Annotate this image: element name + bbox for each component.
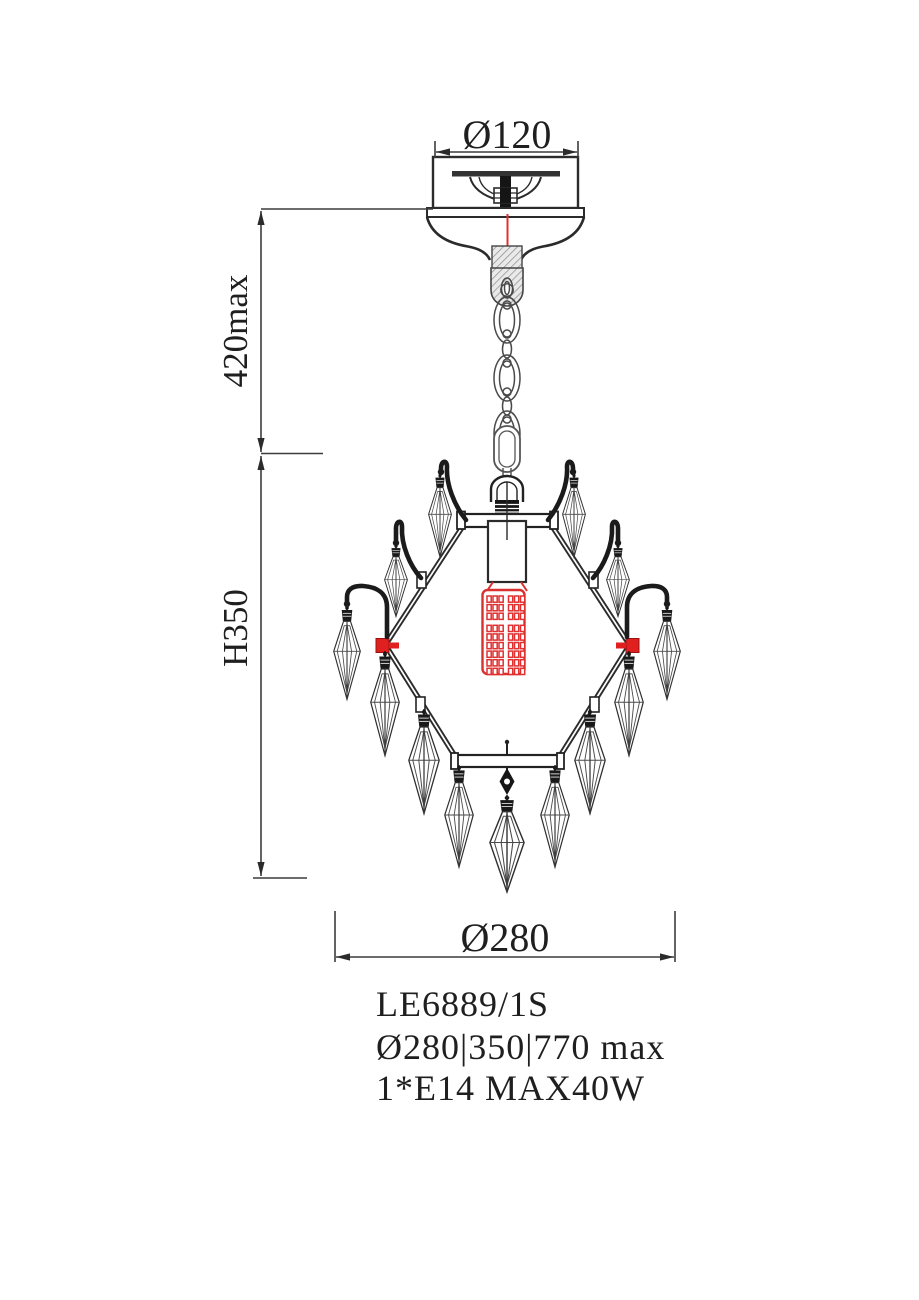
filament-cell: [521, 643, 525, 649]
filament-cell: [521, 596, 525, 602]
filament-cell: [509, 643, 513, 649]
filament-cell: [515, 625, 519, 631]
filament-cell: [509, 668, 513, 674]
filament-cell: [509, 596, 513, 602]
filament-cell: [487, 596, 491, 602]
filament-cell: [521, 668, 525, 674]
filament-cell: [521, 634, 525, 640]
filament-cell: [515, 668, 519, 674]
filament-cell: [499, 643, 503, 649]
filament-cell: [521, 613, 525, 619]
filament-cell: [515, 613, 519, 619]
product-size-spec: Ø280|350|770 max: [376, 1027, 665, 1067]
filament-cell: [487, 613, 491, 619]
crystal-drop: [445, 765, 474, 867]
technical-drawing-page: Ø120 420max H350 Ø280 LE6889/1S Ø280|350…: [0, 0, 919, 1300]
crystal-drop: [371, 651, 400, 755]
filament-cell: [499, 651, 503, 657]
mounting-plate: [452, 171, 560, 177]
dimension-vertical: [253, 209, 433, 878]
filament-cell: [487, 625, 491, 631]
filament-cell: [515, 643, 519, 649]
filament-cell: [515, 634, 519, 640]
filament-cell: [521, 651, 525, 657]
filament-cell: [499, 625, 503, 631]
filament-cell: [515, 596, 519, 602]
filament-cell: [499, 634, 503, 640]
dim-label-fixture-diameter: Ø280: [461, 915, 550, 960]
filament-cell: [521, 605, 525, 611]
filament-cell: [487, 643, 491, 649]
bottom-bar: [456, 755, 559, 767]
canopy-bell: [427, 217, 490, 260]
filament-cell: [515, 605, 519, 611]
filament-cell: [493, 634, 497, 640]
filament-cell: [493, 625, 497, 631]
filament-cell: [499, 596, 503, 602]
filament-cell: [487, 634, 491, 640]
filament-cell: [493, 660, 497, 666]
filament-cell: [509, 660, 513, 666]
filament-cell: [493, 651, 497, 657]
bulb: [483, 582, 528, 675]
dim-label-suspension-max: 420max: [216, 274, 255, 387]
filament-cell: [509, 625, 513, 631]
filament-cell: [499, 668, 503, 674]
filament-cell: [509, 651, 513, 657]
product-model: LE6889/1S: [376, 984, 549, 1024]
filament-cell: [515, 660, 519, 666]
filament-cell: [493, 613, 497, 619]
filament-cell: [487, 605, 491, 611]
filament-cell: [493, 605, 497, 611]
filament-cell: [487, 668, 491, 674]
filament-cell: [509, 605, 513, 611]
slope-clamp: [590, 697, 599, 712]
chandelier-drawing: Ø120 420max H350 Ø280 LE6889/1S Ø280|350…: [0, 0, 919, 1300]
dim-label-canopy-diameter: Ø120: [463, 112, 552, 157]
canopy-flange: [427, 208, 584, 217]
filament-cell: [509, 634, 513, 640]
filament-cell: [509, 613, 513, 619]
threaded-nipple: [492, 246, 522, 270]
spec-block: LE6889/1S Ø280|350|770 max 1*E14 MAX40W: [376, 984, 665, 1108]
filament-cell: [493, 668, 497, 674]
filament-cell: [493, 596, 497, 602]
filament-cell: [487, 660, 491, 666]
filament-cell: [499, 660, 503, 666]
product-lamp-spec: 1*E14 MAX40W: [376, 1068, 645, 1108]
filament-cell: [521, 625, 525, 631]
filament-cell: [515, 651, 519, 657]
filament-cell: [493, 643, 497, 649]
filament-cell: [499, 613, 503, 619]
crystal-drop: [654, 605, 681, 699]
filament-cell: [499, 605, 503, 611]
dim-label-fixture-height: H350: [216, 589, 255, 667]
red-connector-right: [616, 639, 639, 653]
crystal-drop: [490, 795, 524, 892]
filament-cell: [521, 660, 525, 666]
crystal-drop: [334, 605, 361, 699]
chain-link: [494, 355, 520, 401]
red-connector-left: [376, 639, 399, 653]
crystal-drop: [541, 765, 570, 867]
filament-cell: [487, 651, 491, 657]
